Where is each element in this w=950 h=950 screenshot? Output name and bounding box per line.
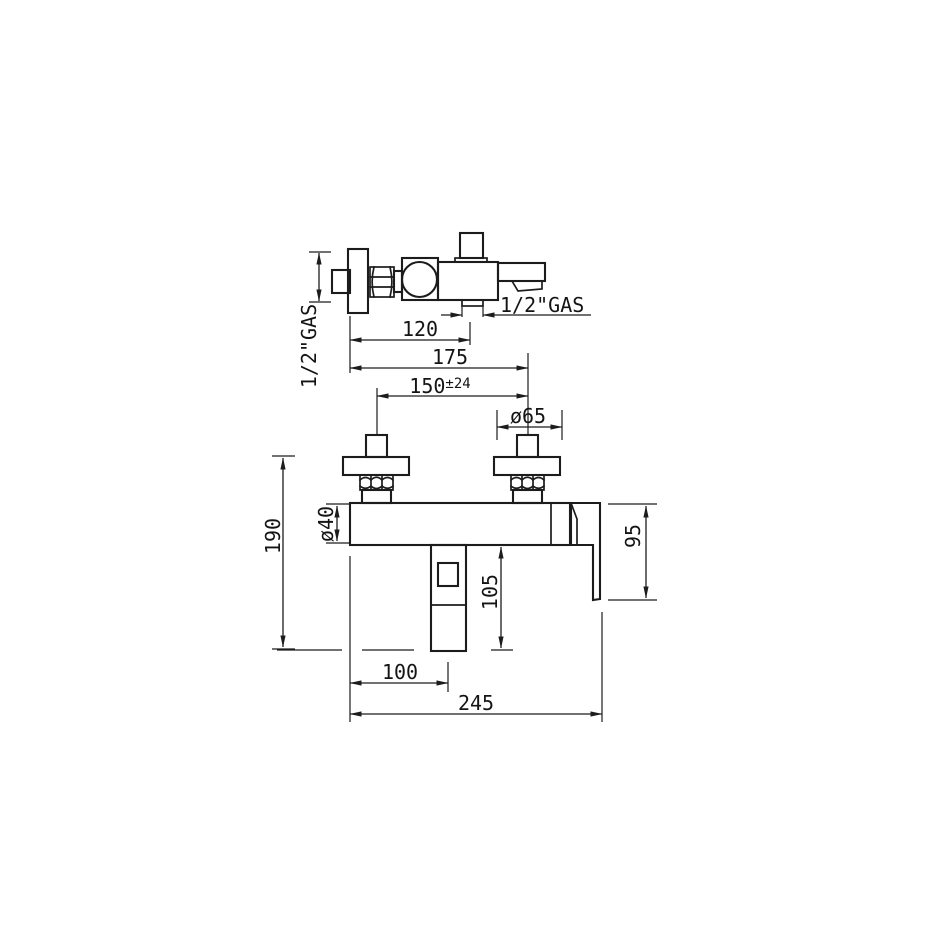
front-view: [343, 435, 600, 651]
side-spout-lip: [512, 281, 542, 291]
front-right-connector: [494, 435, 560, 503]
side-link: [394, 271, 402, 292]
outlet-thread-callout: 1/2"GAS: [441, 293, 591, 317]
dimension-95: 95: [608, 504, 657, 600]
side-body: [438, 262, 498, 300]
connector-stem: [362, 490, 391, 503]
hex-chamfer-arc: [372, 267, 374, 297]
side-hex-nut: [370, 267, 394, 297]
front-body: [350, 503, 570, 545]
technical-drawing-page: 1/2"GAS 1/2"GAS 120 175 150±24 ø65: [0, 0, 950, 950]
dimension-label: 150±24: [409, 374, 470, 398]
dimension-40: ø40: [314, 504, 349, 543]
dimension-190: 190: [261, 456, 414, 650]
side-diverter-knob: [460, 233, 483, 258]
dimension-label: ø40: [314, 506, 338, 542]
mixer-technical-drawing: 1/2"GAS 1/2"GAS 120 175 150±24 ø65: [0, 0, 950, 950]
side-knob-base: [455, 258, 487, 262]
connector-hex-nut: [360, 475, 393, 490]
hex-chamfer-arcs: [360, 486, 393, 489]
dimension-label: ø65: [510, 404, 546, 428]
lever-outline: [571, 503, 600, 600]
dimension-value: 150: [409, 374, 445, 398]
dimension-label: 245: [458, 691, 494, 715]
dimension-label: 105: [478, 574, 502, 610]
connector-flange: [343, 457, 409, 475]
outlet-thread-label: 1/2"GAS: [500, 293, 584, 317]
spout-diverter-window: [438, 563, 458, 586]
side-cartridge-circle: [402, 262, 437, 297]
hex-chamfer-arcs: [511, 477, 544, 480]
side-spout: [498, 263, 545, 281]
front-lever-handle: [571, 503, 600, 600]
spout-column: [431, 545, 466, 651]
dimension-label: 95: [621, 524, 645, 548]
dimension-tolerance: ±24: [445, 376, 470, 392]
connector-flange: [494, 457, 560, 475]
front-left-connector: [343, 435, 409, 503]
dimension-label: 175: [432, 345, 468, 369]
connector-nipple: [517, 435, 538, 457]
hex-chamfer-arcs: [511, 486, 544, 489]
dimension-100: 100: [350, 556, 448, 722]
dimension-label: 100: [382, 660, 418, 684]
connector-stem: [513, 490, 542, 503]
dimension-label: 190: [261, 518, 285, 554]
side-cartridge-housing: [402, 258, 438, 300]
front-spout: [431, 545, 466, 651]
hex-chamfer-arc: [390, 267, 392, 297]
connector-hex-nut: [511, 475, 544, 490]
hex-chamfer-arcs: [360, 477, 393, 480]
inlet-thread-label: 1/2"GAS: [297, 304, 321, 388]
dimension-label: 120: [402, 317, 438, 341]
dimension-105: 105: [478, 547, 513, 650]
dimension-150: 150±24: [377, 374, 528, 434]
inlet-thread-callout: 1/2"GAS: [297, 252, 331, 388]
connector-nipple: [366, 435, 387, 457]
